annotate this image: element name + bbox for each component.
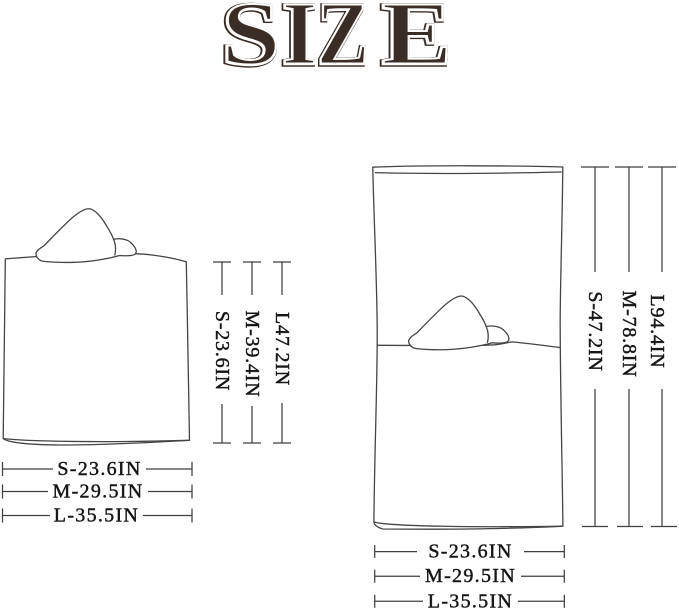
svg-text:L47.2IN: L47.2IN (271, 312, 293, 386)
svg-text:M-29.5IN: M-29.5IN (425, 565, 516, 587)
svg-text:E: E (382, 0, 452, 84)
svg-text:S-47.2IN: S-47.2IN (584, 291, 606, 371)
svg-text:S-23.6IN: S-23.6IN (211, 311, 233, 391)
svg-text:M-39.4IN: M-39.4IN (241, 311, 263, 398)
svg-text:S: S (222, 0, 281, 84)
svg-text:Z: Z (317, 0, 369, 84)
svg-text:L-35.5IN: L-35.5IN (428, 590, 513, 612)
svg-text:S-23.6IN: S-23.6IN (57, 458, 141, 480)
svg-text:M-78.8IN: M-78.8IN (618, 291, 640, 378)
svg-text:L-35.5IN: L-35.5IN (54, 505, 139, 527)
svg-text:L94.4IN: L94.4IN (646, 295, 668, 369)
svg-text:I: I (282, 0, 317, 84)
svg-text:S-23.6IN: S-23.6IN (428, 541, 512, 563)
svg-text:M-29.5IN: M-29.5IN (53, 481, 144, 503)
